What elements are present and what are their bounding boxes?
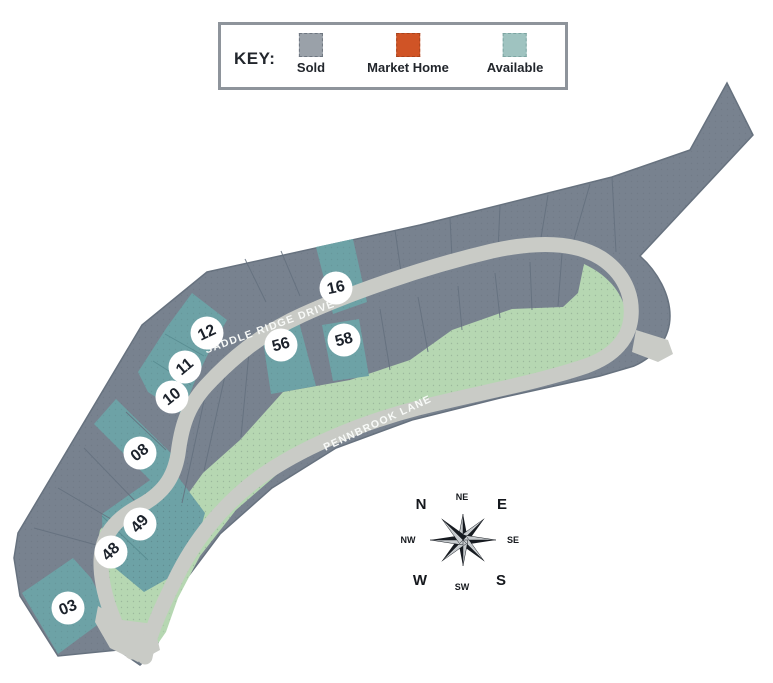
compass-label-W: W [413, 572, 428, 589]
compass-rose: NNEENWSEWSWS [401, 492, 520, 592]
lot-badge-08[interactable]: 08 [124, 437, 157, 470]
compass-label-SW: SW [455, 582, 470, 592]
key-item-sold: Sold [297, 33, 325, 75]
sold-swatch [299, 33, 323, 57]
lot-badge-11[interactable]: 11 [169, 351, 202, 384]
site-map: SADDLE RIDGE DRIVE PENNBROOK LANE 030810… [0, 0, 773, 683]
site-map-page: KEY: Sold Market Home Available [0, 0, 773, 683]
compass-label-SE: SE [507, 535, 519, 545]
key-item-market-home: Market Home [367, 33, 449, 75]
map-key: KEY: Sold Market Home Available [218, 22, 568, 90]
lot-badge-48[interactable]: 48 [95, 536, 128, 569]
market-home-label: Market Home [367, 60, 449, 75]
compass-label-E: E [497, 496, 507, 513]
market-home-swatch [396, 33, 420, 57]
lot-badge-12[interactable]: 12 [191, 317, 224, 350]
lot-badge-10[interactable]: 10 [156, 381, 189, 414]
lot-number: 16 [326, 278, 347, 298]
available-label: Available [487, 60, 544, 75]
compass-star-icon [430, 514, 496, 566]
compass-label-NE: NE [456, 492, 469, 502]
compass-label-N: N [416, 496, 427, 513]
sold-label: Sold [297, 60, 325, 75]
compass-label-NW: NW [401, 535, 416, 545]
lot-badge-49[interactable]: 49 [124, 508, 157, 541]
available-swatch [503, 33, 527, 57]
key-title: KEY: [234, 49, 275, 69]
key-item-available: Available [487, 33, 544, 75]
lot-badge-03[interactable]: 03 [52, 592, 85, 625]
lot-badge-16[interactable]: 16 [320, 272, 353, 305]
lot-badge-56[interactable]: 56 [265, 329, 298, 362]
lot-badge-58[interactable]: 58 [328, 324, 361, 357]
compass-label-S: S [496, 572, 506, 589]
